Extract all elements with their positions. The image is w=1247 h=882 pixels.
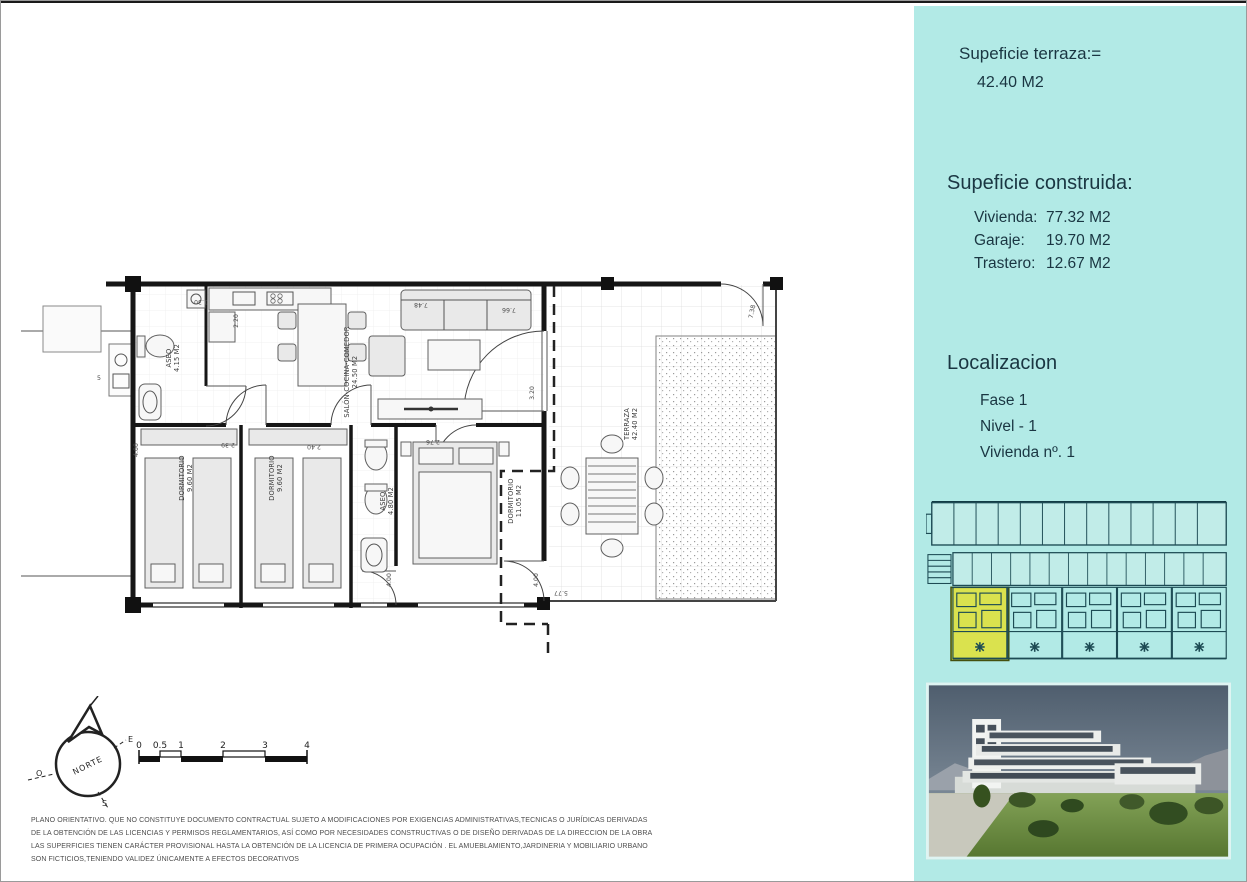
location-vivienda: Vivienda nº. 1: [980, 440, 1075, 466]
info-sidebar: Supeficie terraza:= 42.40 M2 Supeficie c…: [914, 6, 1247, 882]
svg-text:4.00: 4.00: [133, 443, 140, 457]
scale-bar: 0 0.5 1 2 3 4: [129, 736, 329, 781]
outdoor-table: [586, 458, 638, 534]
compass-west-label: O: [36, 769, 42, 778]
column: [601, 277, 614, 290]
svg-text:4.00: 4.00: [533, 573, 540, 587]
disclaimer-line: LAS SUPERFICIES TIENEN CARÁCTER PROVISIO…: [31, 840, 631, 853]
building-render-photo: [926, 679, 1231, 863]
coffee-table: [428, 340, 480, 370]
disclaimer-line: DE LA OBTENCIÓN DE LAS LICENCIAS Y PERMI…: [31, 827, 631, 840]
disclaimer-line: PLANO ORIENTATIVO. QUE NO CONSTITUYE DOC…: [31, 814, 631, 827]
svg-text:0.5: 0.5: [153, 741, 167, 751]
nightstand: [499, 442, 509, 456]
compass-north-label: NORTE: [71, 754, 104, 776]
location-title: Localizacion: [947, 352, 1057, 375]
location-rows: Fase 1 Nivel - 1 Vivienda nº. 1: [980, 388, 1075, 466]
svg-text:5: 5: [97, 375, 101, 382]
north-compass: NORTE E O S: [26, 696, 146, 816]
svg-text:2.76: 2.76: [426, 438, 440, 445]
location-fase: Fase 1: [980, 388, 1075, 414]
svg-text:1.30: 1.30: [194, 298, 208, 305]
built-row-garaje: Garaje: 19.70 M2: [974, 229, 1111, 252]
dining-table: [298, 304, 346, 386]
column: [770, 277, 783, 290]
svg-text:5.77: 5.77: [554, 589, 568, 596]
disclaimer-text: PLANO ORIENTATIVO. QUE NO CONSTITUYE DOC…: [31, 814, 631, 866]
site-key-plan: [926, 494, 1232, 672]
terrace-gravel-area: [656, 336, 776, 599]
plan-sheet: ASEO4.15 M2 SALÓN-COCINA-COMEDOR24.50 M2…: [0, 0, 1247, 882]
exterior-planter: [43, 306, 101, 352]
tv-stand: [429, 407, 434, 412]
room-label-terraza: TERRAZA42.40 M2: [623, 408, 639, 441]
column: [125, 597, 141, 613]
armchair: [369, 336, 405, 376]
svg-text:3.20: 3.20: [529, 386, 536, 400]
unit-module-5: [1172, 587, 1226, 658]
svg-text:2.40: 2.40: [307, 443, 321, 450]
storage-row: [953, 553, 1226, 586]
column: [125, 276, 141, 292]
sink: [139, 384, 161, 420]
siteplan-appendix: [926, 514, 932, 533]
svg-text:1: 1: [178, 741, 184, 751]
room-label-dorm1: DORMITORIO9.60 M2: [178, 455, 194, 500]
unit-module-2: [1008, 587, 1062, 658]
fridge: [209, 312, 235, 342]
bidet: [365, 440, 387, 470]
scale-bar-segments: [139, 750, 307, 764]
disclaimer-line: SON FICTICIOS,TENIENDO VALIDEZ ÚNICAMENT…: [31, 853, 631, 866]
built-row-vivienda: Vivienda: 77.32 M2: [974, 206, 1111, 229]
double-bed: [413, 442, 497, 564]
sink: [361, 538, 387, 572]
svg-text:7.66: 7.66: [502, 306, 516, 313]
built-area-title: Supeficie construida:: [947, 172, 1133, 195]
nightstand: [401, 442, 411, 456]
location-nivel: Nivel - 1: [980, 414, 1075, 440]
svg-text:7.48: 7.48: [414, 301, 428, 308]
closet: [249, 429, 347, 445]
sheet-top-border: [1, 1, 1246, 3]
terrace-area-title: Supeficie terraza:=: [959, 44, 1101, 64]
built-area-rows: Vivienda: 77.32 M2 Garaje: 19.70 M2 Tras…: [974, 206, 1111, 275]
svg-text:4: 4: [304, 741, 310, 751]
built-row-trastero: Trastero: 12.67 M2: [974, 252, 1111, 275]
north-arrow-icon: [68, 706, 102, 742]
unit-module-4: [1117, 587, 1171, 658]
unit-module-3: [1063, 587, 1117, 658]
svg-text:2: 2: [220, 741, 226, 751]
north-arrow-tail: [90, 696, 98, 706]
svg-text:2.20: 2.20: [233, 314, 240, 328]
floor-plan-drawing: ASEO4.15 M2 SALÓN-COCINA-COMEDOR24.50 M2…: [21, 246, 826, 656]
terrace-area-value: 42.40 M2: [977, 74, 1044, 92]
svg-text:3: 3: [262, 741, 268, 751]
stair-box: [928, 555, 951, 584]
compass-south-label: S: [102, 799, 107, 808]
room-label-dorm3: DORMITORIO11.05 M2: [507, 478, 523, 523]
svg-text:2.39: 2.39: [221, 441, 235, 448]
svg-text:4.00: 4.00: [386, 573, 393, 587]
svg-text:0: 0: [136, 741, 142, 751]
compass-east-tick: [114, 740, 126, 748]
